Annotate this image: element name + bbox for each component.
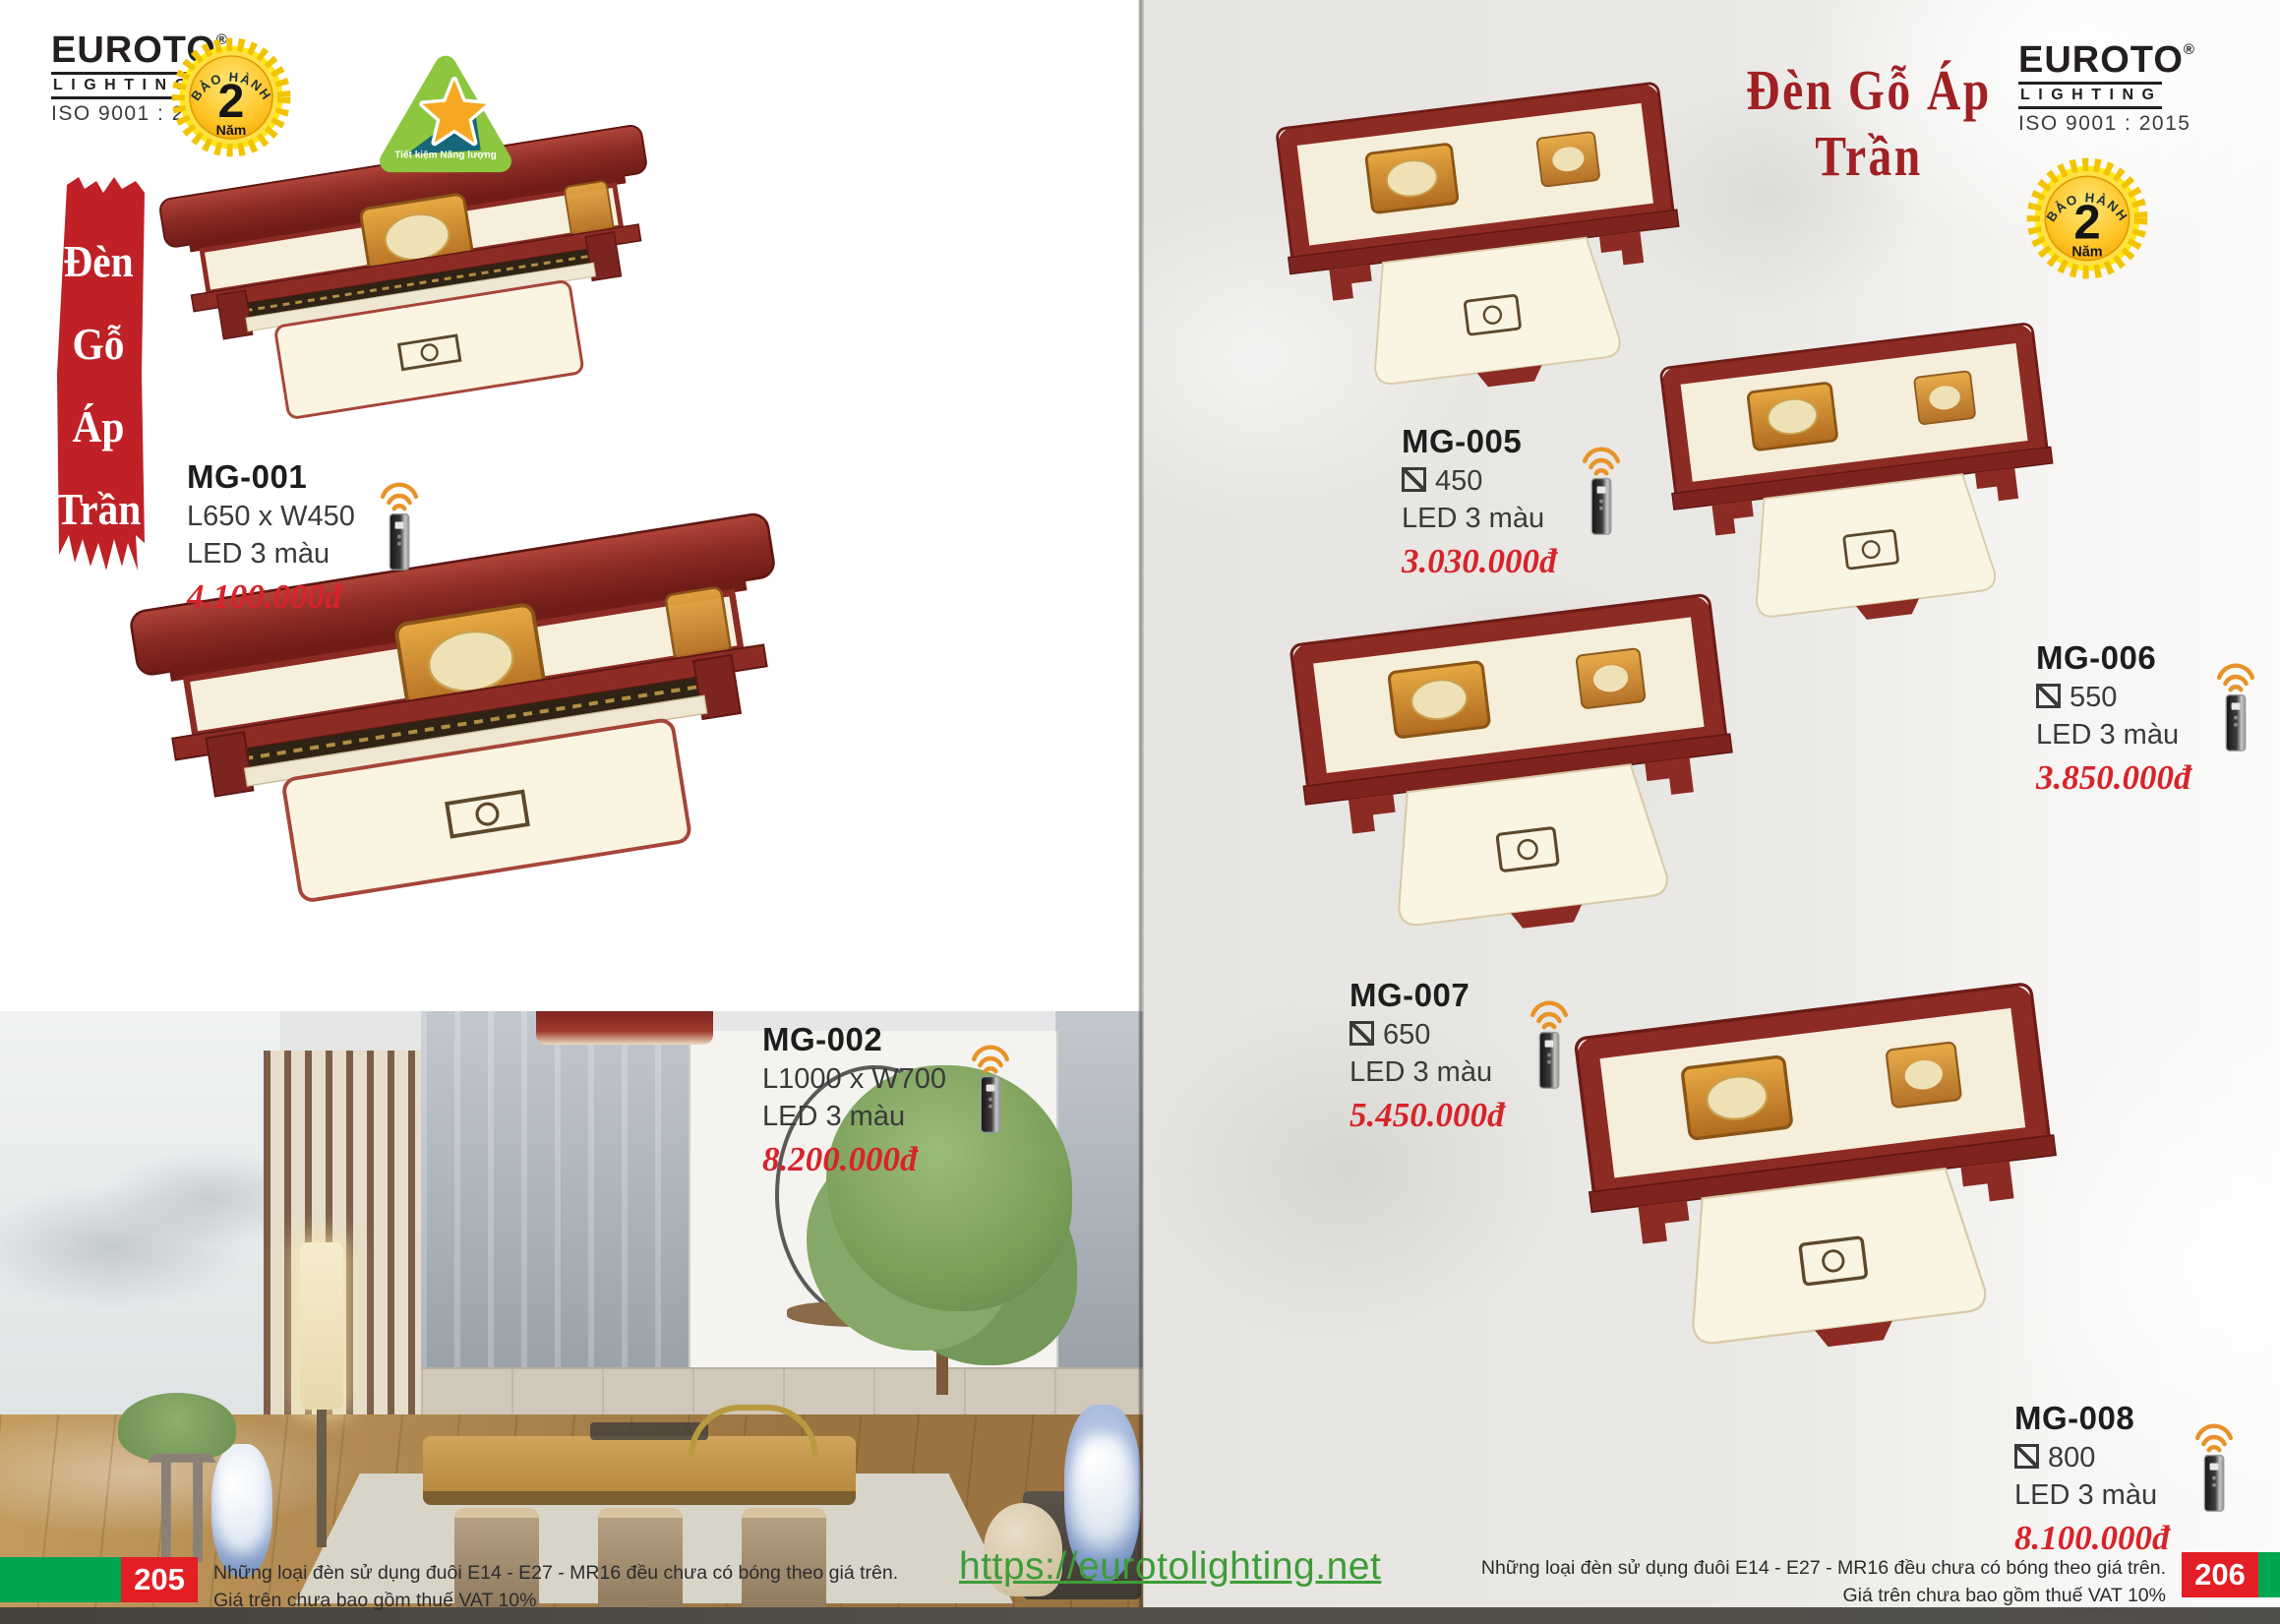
- product-size: 800: [2048, 1442, 2095, 1474]
- product-price: 8.200.000đ: [762, 1140, 946, 1179]
- remote-control-icon: [369, 472, 430, 572]
- product-code: MG-002: [762, 1021, 946, 1058]
- website-link[interactable]: https://eurotolighting.net: [959, 1545, 1381, 1589]
- remote-control-icon: [1571, 437, 1632, 537]
- product-code: MG-001: [187, 458, 355, 496]
- product-price: 3.030.000đ: [1402, 542, 1557, 581]
- photo-bonsai: [118, 1393, 236, 1462]
- product-led: LED 3 màu: [1402, 503, 1557, 535]
- product-code: MG-005: [1402, 423, 1557, 460]
- square-dimension-icon: [1350, 1021, 1374, 1046]
- banner-line: Gỗ: [54, 303, 143, 386]
- brand-logo-right: EUROTO® LIGHTING ISO 9001 : 2015: [2018, 41, 2195, 136]
- product-led: LED 3 màu: [187, 538, 355, 571]
- remote-control-icon: [2205, 653, 2266, 753]
- brand-tagline: LIGHTING: [2018, 82, 2162, 109]
- footer-note-line1: Những loại đèn sử dụng đuôi E14 - E27 - …: [1481, 1554, 2166, 1582]
- footer-right: Những loại đèn sử dụng đuôi E14 - E27 - …: [1466, 1552, 2280, 1610]
- footer-note-line2: Giá trên chưa bao gồm thuế VAT 10%: [1481, 1582, 2166, 1609]
- product-code: MG-006: [2036, 639, 2191, 677]
- photo-floor-lamp-pole: [317, 1410, 327, 1547]
- product-led: LED 3 màu: [762, 1101, 946, 1133]
- product-info-mg-006: MG-006 550 LED 3 màu 3.850.000đ: [2036, 639, 2266, 798]
- eco-badge: [380, 53, 511, 177]
- product-price: 5.450.000đ: [1350, 1096, 1505, 1135]
- vertical-banner: Đèn Gỗ Áp Trần: [49, 177, 148, 571]
- photo-floor-lamp: [300, 1242, 343, 1410]
- product-info-mg-005: MG-005 450 LED 3 màu 3.030.000đ: [1402, 423, 1632, 581]
- banner-line: Trần: [54, 468, 143, 551]
- product-size: L650 x W450: [187, 501, 355, 533]
- page-gutter: [1138, 0, 1144, 1624]
- product-info-mg-002: MG-002 L1000 x W700 LED 3 màu 8.200.000đ: [762, 1021, 1021, 1179]
- remote-control-icon: [2184, 1413, 2245, 1514]
- product-info-mg-001: MG-001 L650 x W450 LED 3 màu 4.100.000đ: [187, 458, 430, 617]
- footer-note-line1: Những loại đèn sử dụng đuôi E14 - E27 - …: [213, 1559, 898, 1587]
- product-led: LED 3 màu: [2036, 719, 2191, 752]
- product-code: MG-008: [2014, 1400, 2170, 1437]
- product-size: 650: [1383, 1019, 1430, 1051]
- product-info-mg-007: MG-007 650 LED 3 màu 5.450.000đ: [1350, 977, 1580, 1135]
- warranty-badge-left: [169, 35, 293, 159]
- photo-glass-panel-left: [421, 1011, 689, 1367]
- square-dimension-icon: [2036, 684, 2061, 708]
- brand-iso: ISO 9001 : 2015: [2018, 112, 2195, 136]
- warranty-badge-right: [2024, 155, 2150, 281]
- registered-mark: ®: [2184, 41, 2195, 58]
- product-size: 450: [1435, 465, 1482, 497]
- product-image-mg-007: [1220, 590, 1820, 979]
- catalog-spread: BẢO HÀNH 2 Năm Tiết kiệm Năng lượng: [0, 0, 2280, 1624]
- product-code: MG-007: [1350, 977, 1505, 1014]
- product-price: 4.100.000đ: [187, 577, 355, 617]
- product-info-mg-008: MG-008 800 LED 3 màu 8.100.000đ: [2014, 1400, 2245, 1558]
- footer-notes: Những loại đèn sử dụng đuôi E14 - E27 - …: [1481, 1554, 2166, 1610]
- product-size: 550: [2070, 682, 2117, 713]
- footer-green-bar: [2258, 1552, 2280, 1597]
- photo-mountains: [0, 1129, 280, 1326]
- square-dimension-icon: [2014, 1444, 2039, 1469]
- page-number-left: 205: [121, 1557, 198, 1602]
- footer-notes: Những loại đèn sử dụng đuôi E14 - E27 - …: [213, 1559, 898, 1615]
- footer-left: 205 Những loại đèn sử dụng đuôi E14 - E2…: [0, 1557, 914, 1615]
- footer-green-bar: [0, 1557, 121, 1602]
- product-size: L1000 x W700: [762, 1063, 946, 1096]
- page-title: Đèn Gỗ Áp Trần: [1723, 57, 2013, 189]
- photo-tea-set: [590, 1422, 708, 1440]
- brand-name: EUROTO®: [2018, 41, 2195, 79]
- page-number-right: 206: [2182, 1552, 2258, 1597]
- product-price: 3.850.000đ: [2036, 758, 2191, 798]
- banner-line: Đèn: [54, 220, 143, 303]
- square-dimension-icon: [1402, 467, 1426, 492]
- footer-note-line2: Giá trên chưa bao gồm thuế VAT 10%: [213, 1587, 898, 1614]
- remote-control-icon: [1519, 991, 1580, 1091]
- photo-ceiling-lamp: [536, 1011, 713, 1045]
- product-led: LED 3 màu: [1350, 1056, 1505, 1089]
- remote-control-icon: [960, 1035, 1021, 1135]
- product-led: LED 3 màu: [2014, 1479, 2170, 1512]
- banner-line: Áp: [54, 386, 143, 468]
